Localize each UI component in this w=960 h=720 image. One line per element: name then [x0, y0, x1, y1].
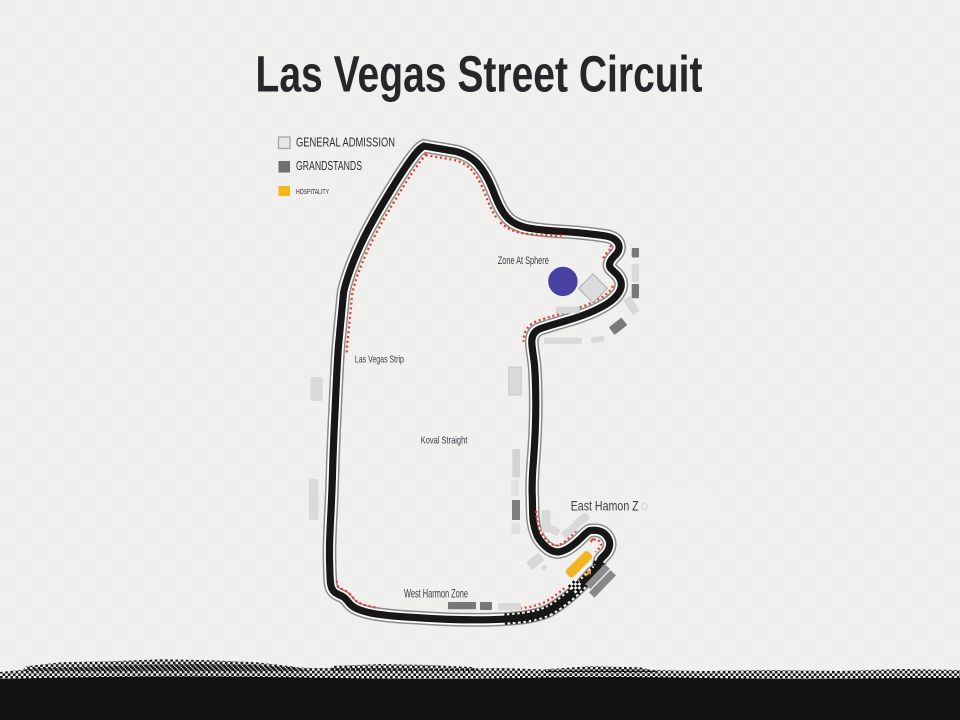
svg-text:Las Vegas Strip: Las Vegas Strip [355, 354, 404, 366]
svg-text:Zone At Sphere: Zone At Sphere [498, 255, 549, 267]
svg-text:Las Vegas Street Circuit: Las Vegas Street Circuit [256, 46, 703, 103]
svg-text:o: o [641, 498, 649, 514]
svg-text:West Harmon Zone: West Harmon Zone [404, 587, 468, 601]
svg-text:Koval Straight: Koval Straight [421, 435, 468, 447]
svg-text:GENERAL ADMISSION: GENERAL ADMISSION [296, 136, 395, 150]
svg-text:GRANDSTANDS: GRANDSTANDS [296, 159, 362, 173]
svg-text:HOSPITALITY: HOSPITALITY [296, 187, 329, 196]
svg-text:East Hamon Z: East Hamon Z [571, 498, 639, 514]
